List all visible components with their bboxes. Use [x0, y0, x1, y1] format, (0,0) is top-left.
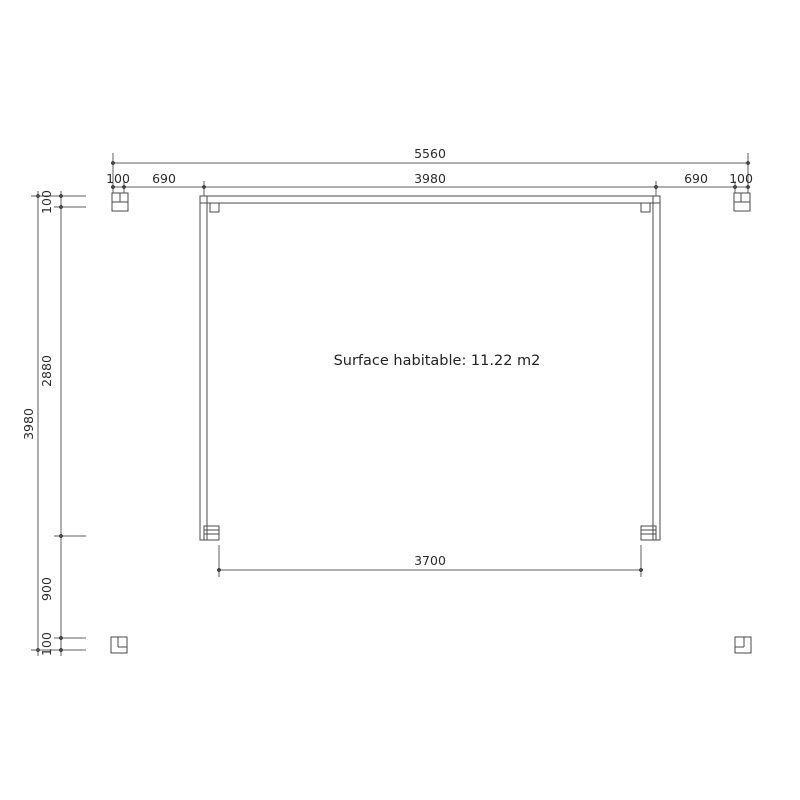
tick-dot	[202, 185, 206, 189]
dimension-bottom-span: 3700	[217, 545, 643, 577]
dim-label-edge-bottom: 100	[39, 632, 54, 656]
dim-label-overall-width: 5560	[414, 146, 446, 161]
footing-bottom-left	[111, 637, 127, 653]
technical-drawing-page: 5560 100 690 3980 690 100 3980	[0, 0, 800, 800]
tick-dot	[59, 636, 63, 640]
corner-bracket-right	[641, 203, 650, 212]
tick-dot	[654, 185, 658, 189]
dim-label-frame-width: 3980	[414, 171, 446, 186]
top-beam	[200, 196, 660, 203]
dim-label-overhang-left: 690	[152, 171, 176, 186]
dim-label-front-offset: 900	[39, 577, 54, 601]
post-bottom-right	[641, 526, 656, 540]
dimension-top-segments: 100 690 3980 690 100	[106, 171, 753, 196]
floor-plan-drawing: 5560 100 690 3980 690 100 3980	[0, 0, 800, 800]
post-bottom-left	[204, 526, 219, 540]
dimension-left-segments: 100 2880 900 100	[31, 190, 86, 656]
footing-bottom-right	[735, 637, 751, 653]
footing-markers	[111, 637, 751, 653]
tick-dot	[59, 194, 63, 198]
front-posts	[204, 526, 656, 540]
living-area-note: Surface habitable: 11.22 m2	[334, 353, 541, 369]
tick-dot	[59, 648, 63, 652]
tick-dot	[639, 568, 643, 572]
right-beam	[653, 196, 660, 540]
dimension-left-total: 3980	[21, 191, 40, 656]
dim-label-edge-left: 100	[106, 171, 130, 186]
dim-label-overhang-right: 690	[684, 171, 708, 186]
dim-label-overall-depth: 3980	[21, 408, 36, 440]
dim-label-edge-top: 100	[39, 190, 54, 214]
corner-bracket-left	[210, 203, 219, 212]
tick-dot	[746, 161, 750, 165]
dim-label-post-span: 3700	[414, 553, 446, 568]
tick-dot	[59, 534, 63, 538]
tick-dot	[59, 205, 63, 209]
tick-dot	[217, 568, 221, 572]
dim-label-side-depth: 2880	[39, 355, 54, 387]
left-beam	[200, 196, 207, 540]
tick-dot	[111, 161, 115, 165]
dim-label-edge-right: 100	[729, 171, 753, 186]
